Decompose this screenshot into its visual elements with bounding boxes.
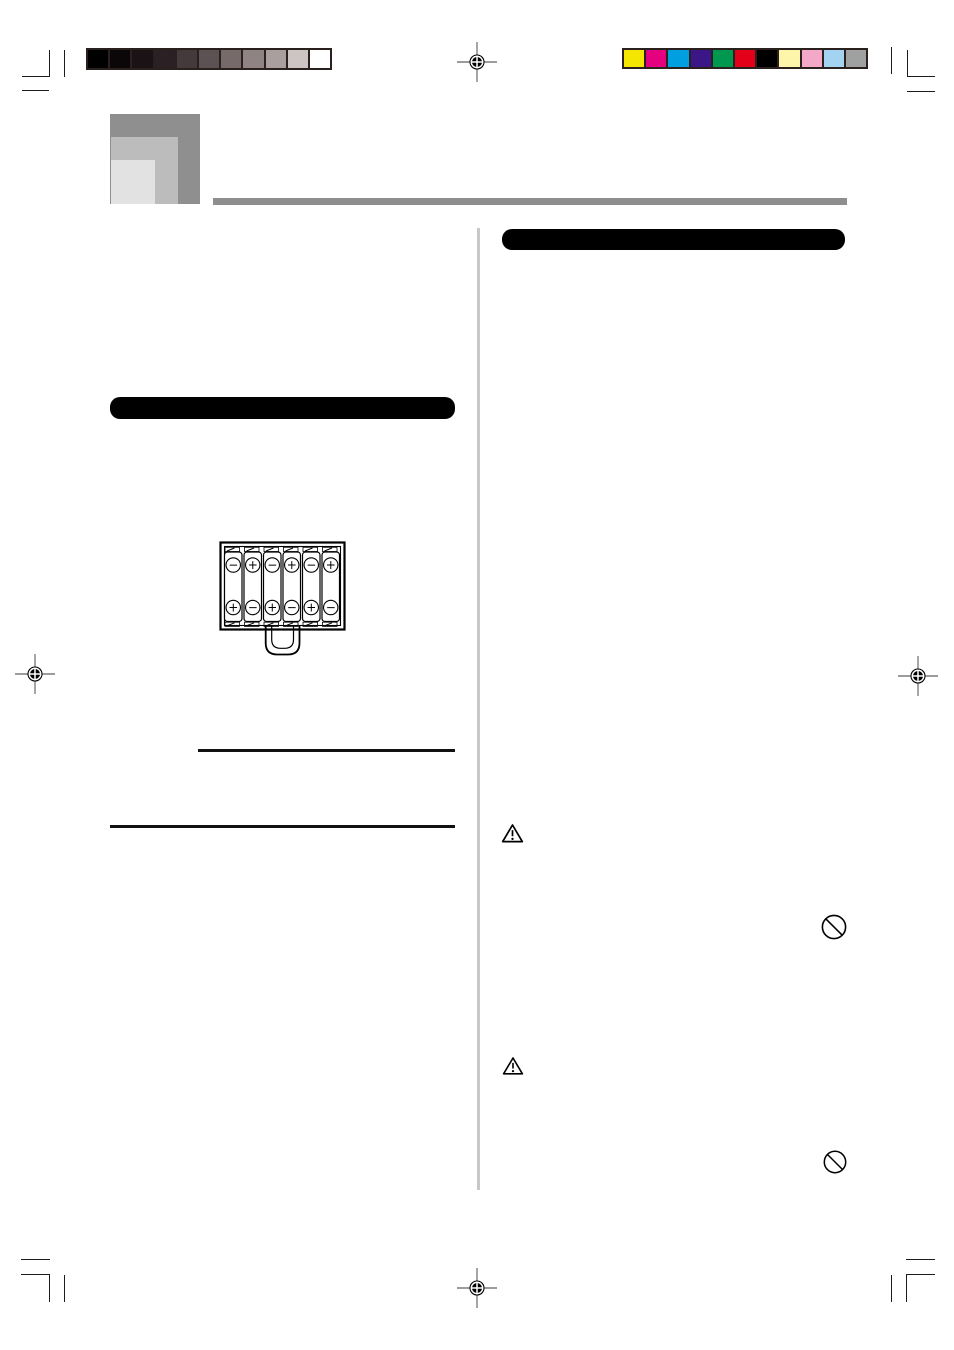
battery-polarity-bottom: + — [306, 600, 316, 614]
battery-polarity-bottom: + — [228, 600, 238, 614]
column-divider — [477, 228, 480, 1190]
crop-line — [64, 1275, 65, 1302]
battery-cell: − + — [225, 547, 243, 626]
grayscale-calibration-bar — [86, 48, 332, 70]
color-swatch — [735, 50, 755, 67]
registration-mark-top — [455, 40, 499, 84]
battery-polarity-bottom: − — [287, 600, 297, 614]
battery-polarity-top: + — [248, 558, 258, 572]
crop-line — [891, 1275, 892, 1302]
warning-triangle-icon — [501, 823, 524, 844]
color-swatch — [132, 50, 152, 68]
crop-line — [21, 1274, 49, 1275]
battery-polarity-top: − — [228, 558, 238, 572]
battery-diagram-svg: − + + − − + — [219, 541, 347, 659]
battery-compartment-diagram: − + + − − + — [219, 541, 347, 659]
battery-cell: + − — [283, 547, 301, 626]
battery-polarity-top: + — [287, 558, 297, 572]
crop-line — [906, 1259, 935, 1260]
battery-cell: + − — [244, 547, 262, 626]
crop-line — [906, 1274, 907, 1302]
color-swatch — [177, 50, 197, 68]
crop-line — [49, 50, 50, 77]
color-swatch — [668, 50, 688, 67]
header-rule — [213, 198, 847, 205]
color-swatch — [691, 50, 711, 67]
crop-line — [21, 1259, 50, 1260]
color-swatch — [802, 50, 822, 67]
color-swatch — [713, 50, 733, 67]
battery-cell: − + — [264, 547, 282, 626]
color-swatch — [221, 50, 241, 68]
crop-line — [49, 1274, 50, 1302]
color-swatch — [88, 50, 108, 68]
battery-polarity-top: + — [326, 558, 336, 572]
battery-polarity-bottom: − — [248, 600, 258, 614]
color-swatch — [779, 50, 799, 67]
color-swatch — [155, 50, 175, 68]
registration-mark-right — [896, 654, 940, 698]
color-swatch — [288, 50, 308, 68]
crop-line — [906, 1274, 935, 1275]
color-swatch — [624, 50, 644, 67]
crop-line — [907, 76, 935, 77]
crop-line — [907, 50, 908, 77]
right-section-header-bar — [502, 229, 845, 250]
color-swatch — [757, 50, 777, 67]
logo-square-light — [111, 160, 155, 204]
prohibition-icon — [823, 1150, 847, 1174]
note-rule-bottom — [110, 825, 455, 828]
crop-line — [907, 91, 935, 92]
battery-polarity-bottom: − — [326, 600, 336, 614]
crop-line — [64, 50, 65, 77]
battery-polarity-top: − — [267, 558, 277, 572]
battery-polarity-bottom: + — [267, 600, 277, 614]
color-swatch — [110, 50, 130, 68]
battery-cell: − + — [303, 547, 321, 626]
color-swatch — [646, 50, 666, 67]
left-section-header-bar — [110, 397, 455, 419]
color-swatch — [199, 50, 219, 68]
registration-mark-left — [13, 652, 57, 696]
registration-mark-bottom — [455, 1266, 499, 1310]
note-rule-top — [198, 749, 455, 752]
color-swatch — [243, 50, 263, 68]
warning-triangle-icon — [502, 1056, 524, 1076]
prohibition-icon — [821, 914, 847, 940]
color-swatch — [310, 50, 330, 68]
battery-polarity-top: − — [306, 558, 316, 572]
crop-line — [22, 76, 49, 77]
color-swatch — [266, 50, 286, 68]
crop-line — [22, 90, 49, 91]
crop-line — [891, 47, 892, 74]
color-swatch — [824, 50, 844, 67]
battery-cell: + − — [322, 547, 340, 626]
color-calibration-bar — [622, 48, 868, 69]
color-swatch — [846, 50, 866, 67]
